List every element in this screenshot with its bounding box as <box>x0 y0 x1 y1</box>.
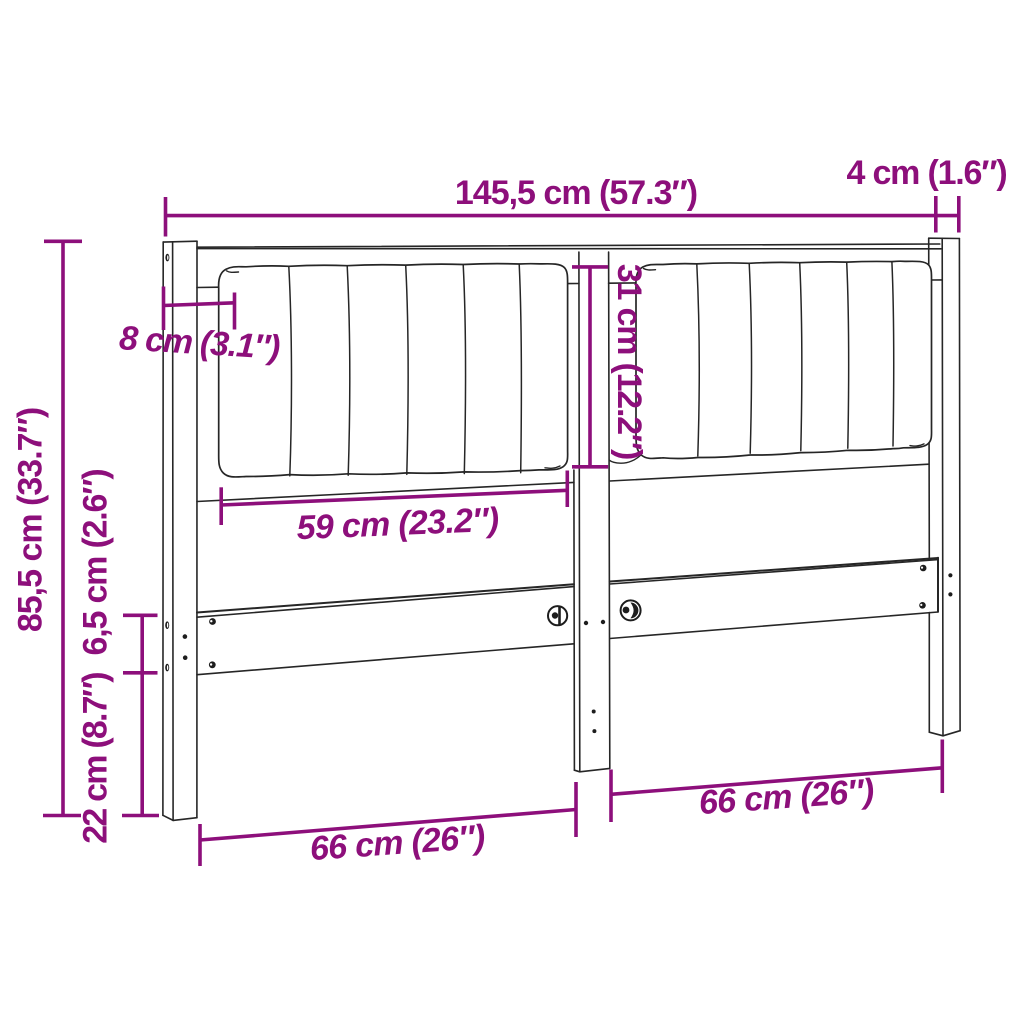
svg-text:145,5 cm (57.3″): 145,5 cm (57.3″) <box>455 174 697 212</box>
svg-text:22 cm (8.7″): 22 cm (8.7″) <box>77 673 115 844</box>
svg-text:6,5 cm (2.6″): 6,5 cm (2.6″) <box>77 470 115 656</box>
svg-text:31 cm (12.2″): 31 cm (12.2″) <box>610 264 648 459</box>
svg-text:85,5 cm (33.7″): 85,5 cm (33.7″) <box>12 408 50 632</box>
svg-text:4 cm (1.6″): 4 cm (1.6″) <box>847 154 1007 192</box>
